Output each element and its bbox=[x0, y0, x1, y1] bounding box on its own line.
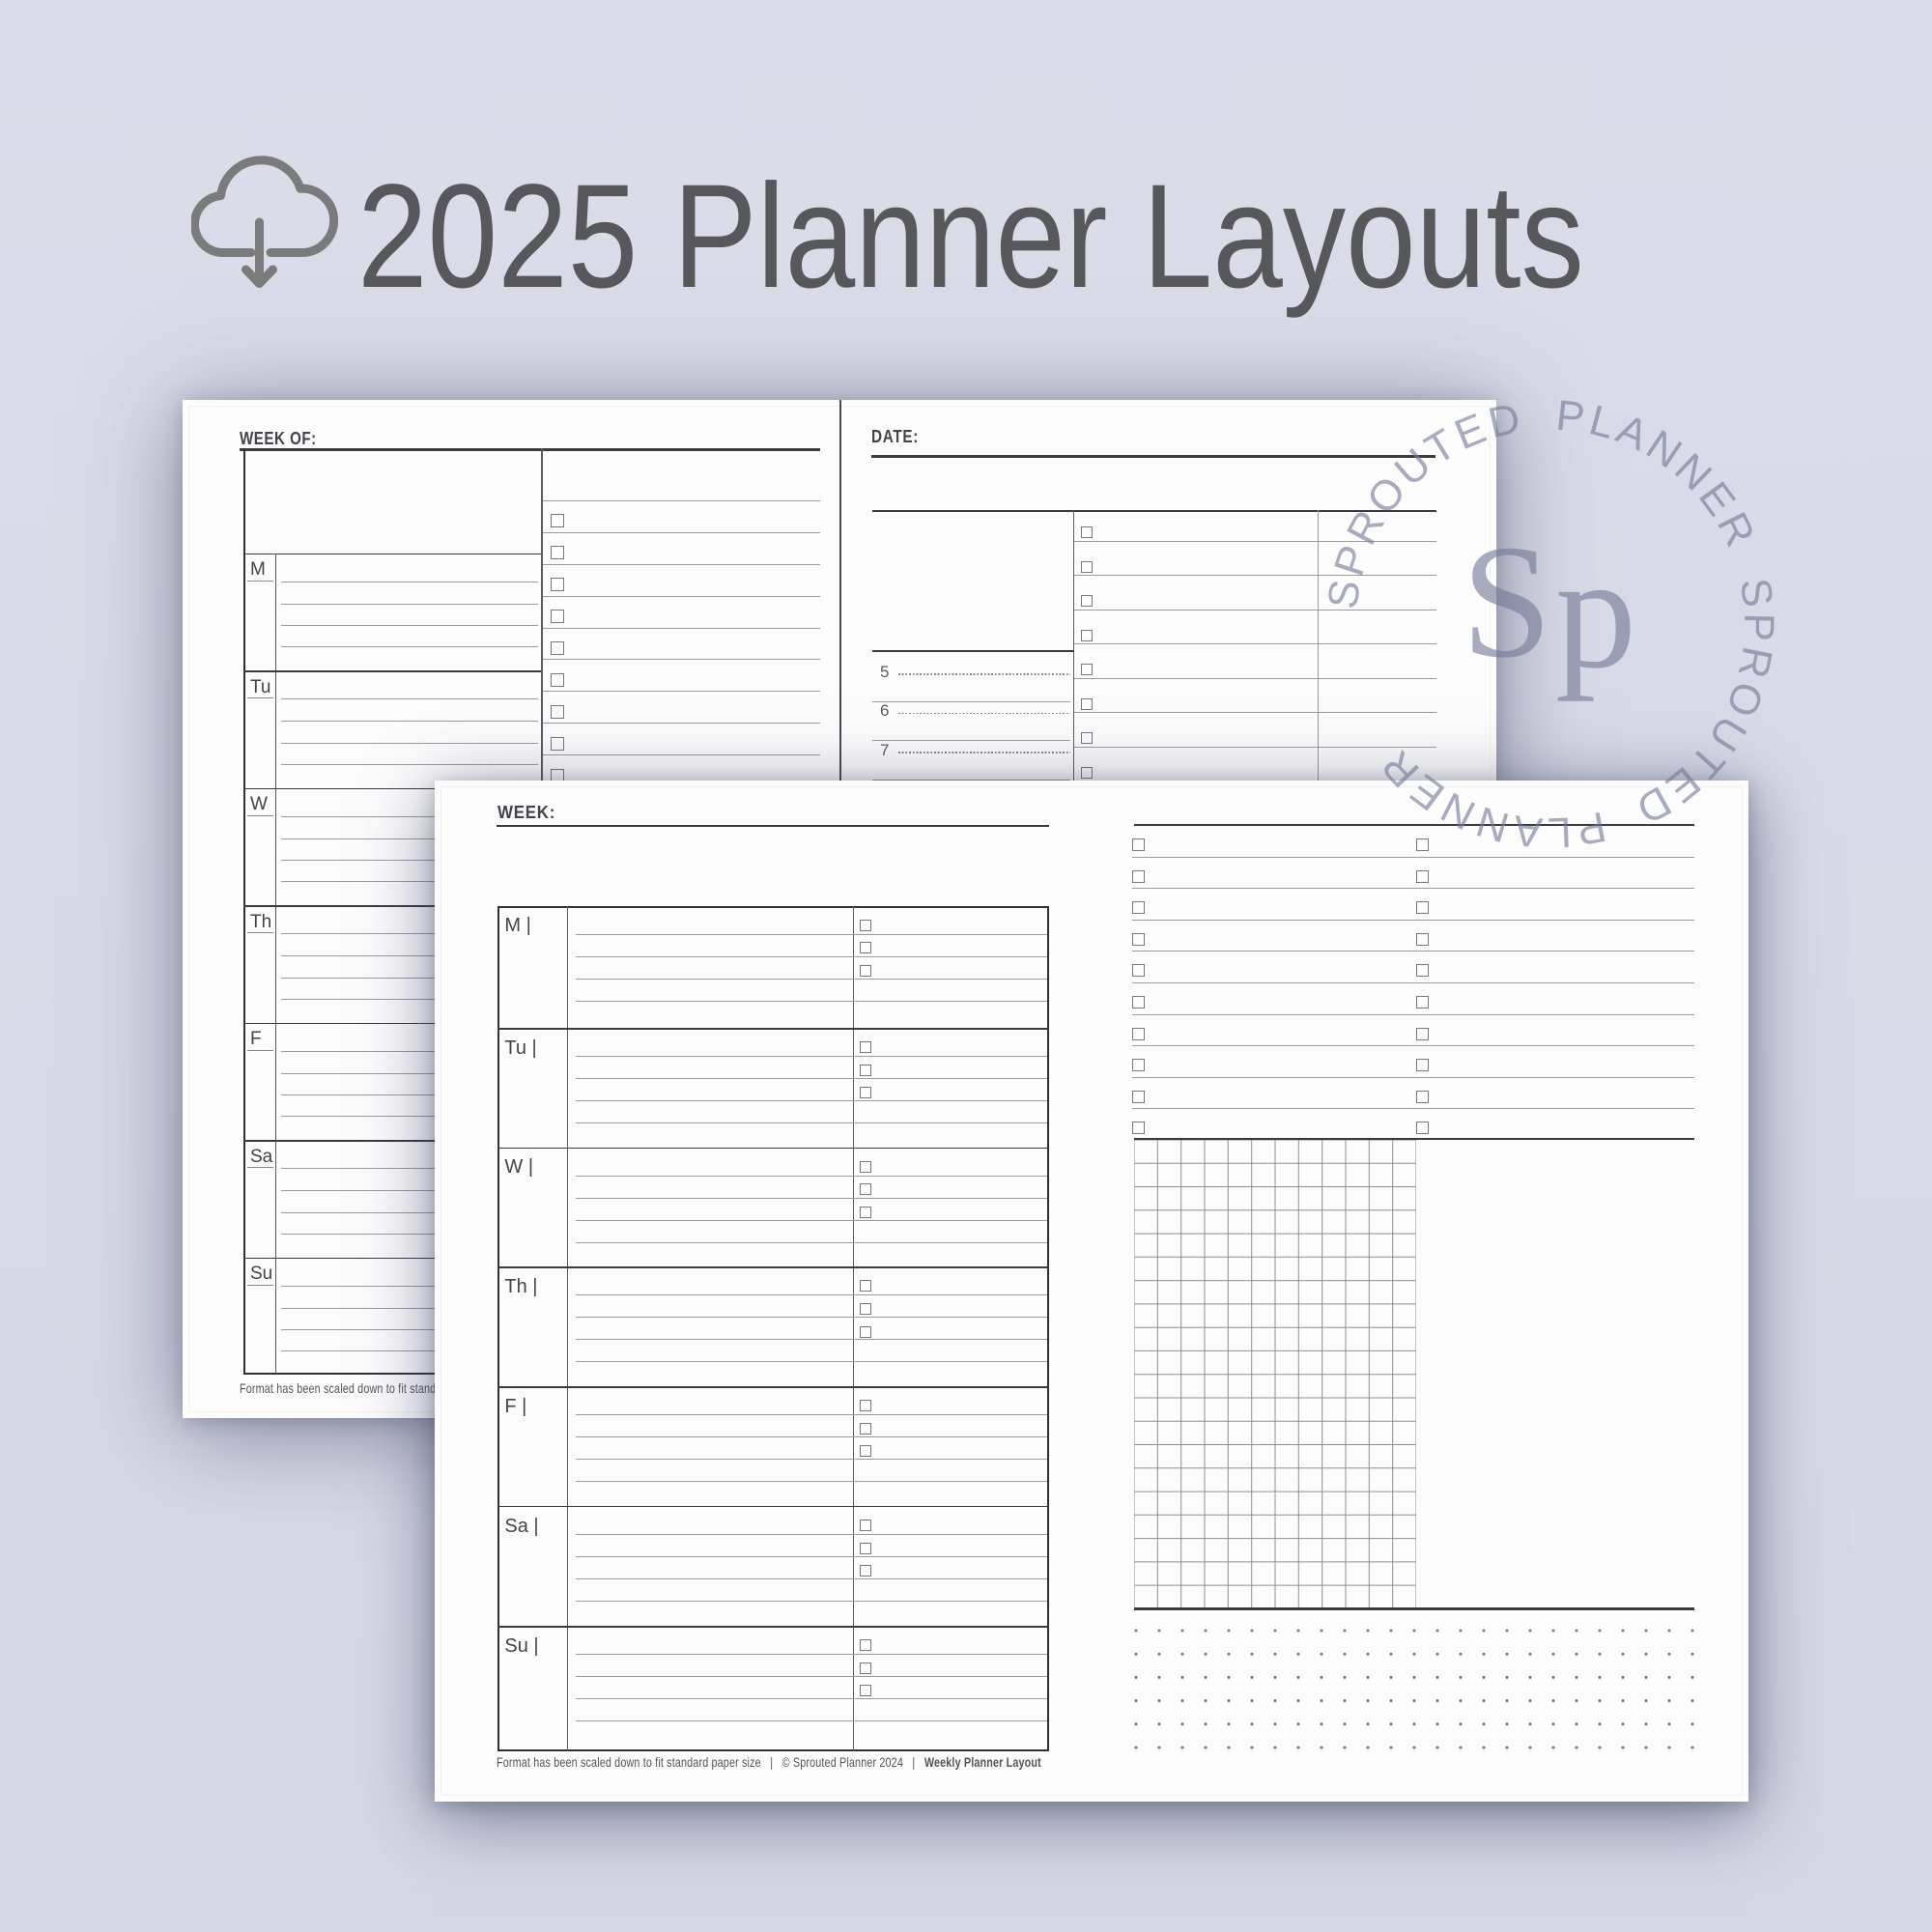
svg-text:p: p bbox=[1555, 523, 1636, 702]
svg-text:S: S bbox=[1462, 512, 1551, 692]
